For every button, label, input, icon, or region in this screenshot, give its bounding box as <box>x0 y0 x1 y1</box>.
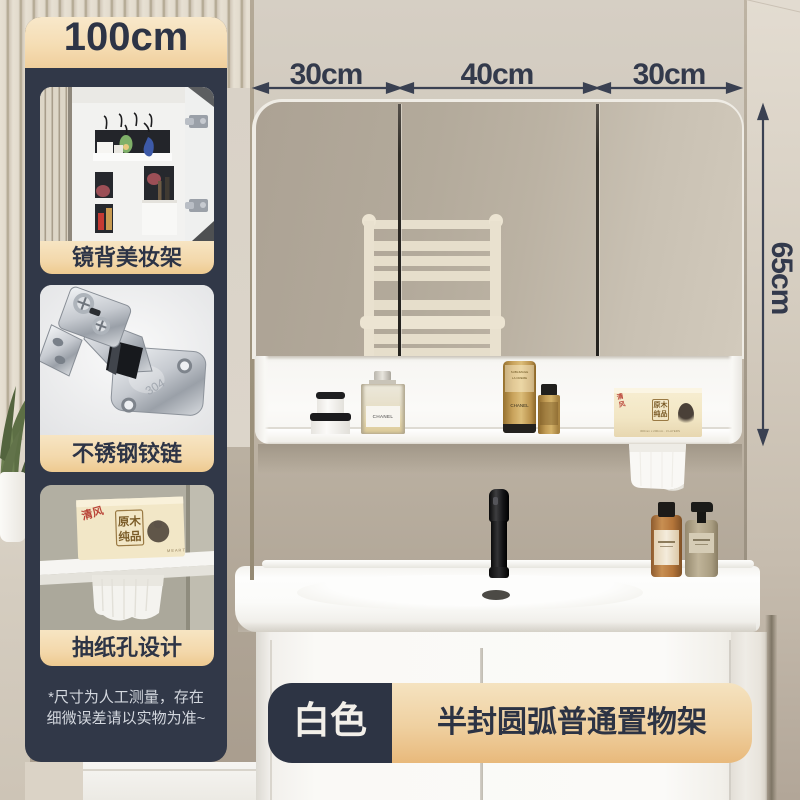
svg-text:65cm: 65cm <box>765 242 798 315</box>
svg-text:原木: 原木 <box>118 514 142 529</box>
svg-text:30cm: 30cm <box>633 58 706 91</box>
svg-text:30cm: 30cm <box>290 58 363 91</box>
svg-text:M E A R T: M E A R T <box>167 547 186 553</box>
svg-text:纯品: 纯品 <box>118 529 141 544</box>
svg-text:40cm: 40cm <box>461 58 534 91</box>
